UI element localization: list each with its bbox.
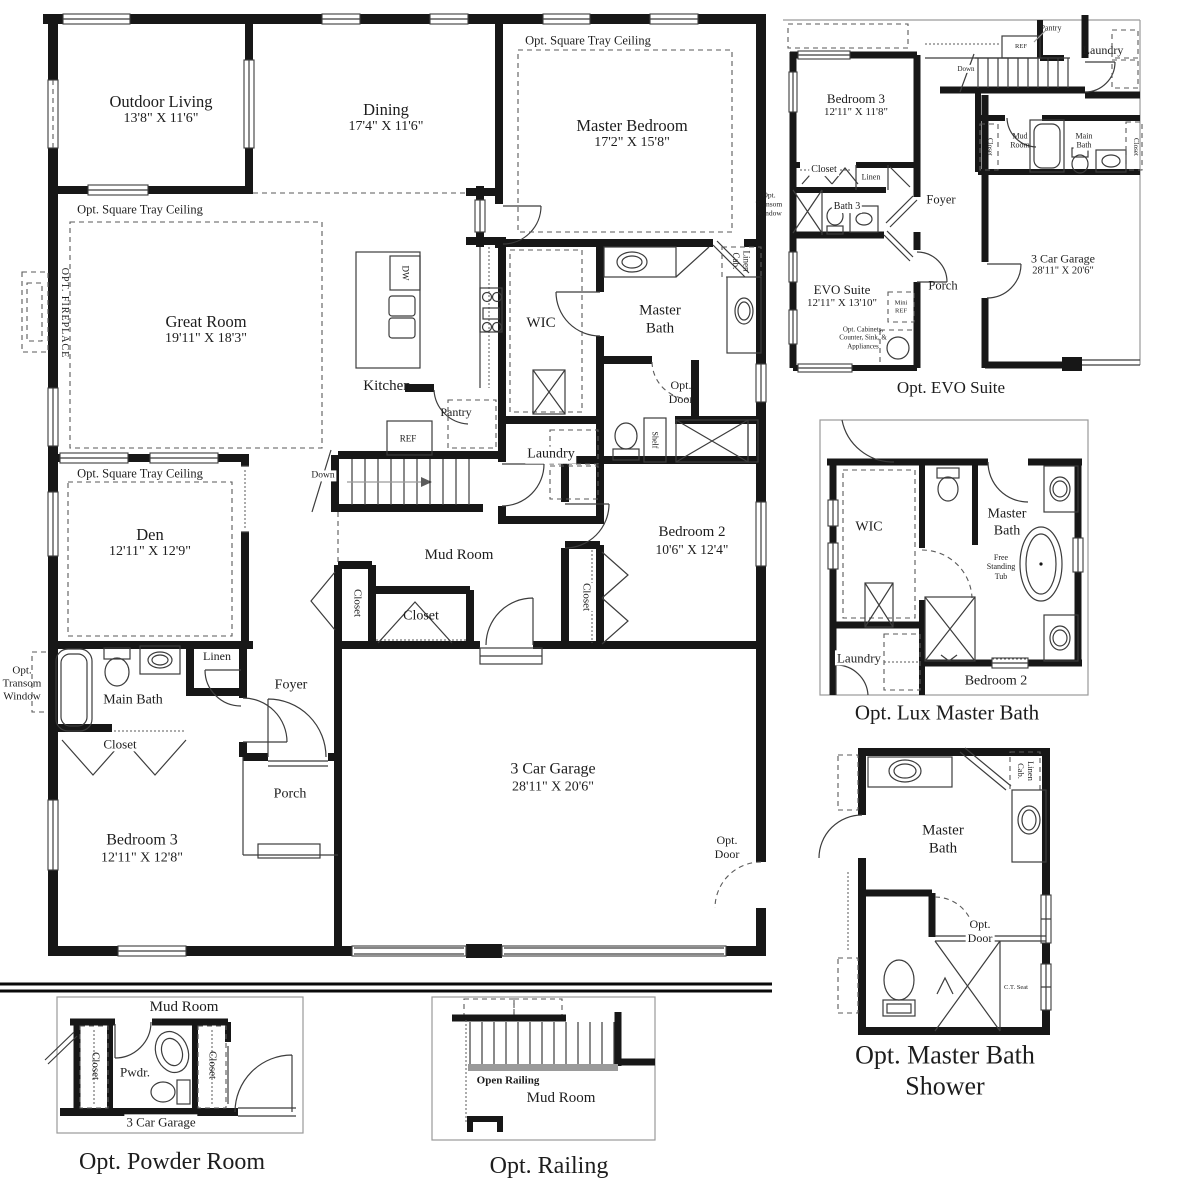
powder-garage-label: 3 Car Garage — [124, 1114, 197, 1129]
lux-free-standing-tub-label: Free Standing Tub — [987, 553, 1015, 581]
main-pantry-label: Pantry — [440, 405, 471, 419]
railing-caption: Opt. Railing — [490, 1152, 609, 1180]
room-name: Outdoor Living — [109, 92, 212, 111]
evo-bath3-label: Bath 3 — [832, 201, 862, 213]
main-garage-label: 3 Car Garage28'11" X 20'6" — [510, 760, 595, 795]
evo-mud-room-label: Mud Room — [1010, 132, 1030, 151]
lux-caption: Opt. Lux Master Bath — [855, 701, 1039, 726]
main-sheet-border — [0, 984, 772, 991]
evo-main-bath-label: Main Bath — [1074, 132, 1095, 151]
bedroom3-closet-label: Closet — [101, 736, 138, 751]
main-main-bath-label: Main Bath — [101, 693, 165, 710]
main-linen-cab-label: Linen Cab. — [730, 251, 751, 272]
shower-caption: Opt. Master Bath Shower — [818, 1040, 1073, 1101]
evo-mini-ref-label: Mini REF — [893, 299, 910, 314]
lux-bedroom2-label: Bedroom 2 — [963, 674, 1030, 691]
evo-suite-label: EVO Suite12'11" X 13'10" — [807, 282, 877, 310]
main-bedroom3-label: Bedroom 312'11" X 12'8" — [101, 831, 183, 866]
main-kitchen-label: Kitchen — [363, 378, 410, 396]
powder-closet-right-label: Closet — [206, 1051, 219, 1079]
den-tray-ceiling-label: Opt. Square Tray Ceiling — [77, 467, 203, 482]
shower-linen-cab-label: Linen Cab. — [1016, 761, 1036, 781]
mudroom-closet-vertical-label: Closet — [349, 589, 366, 617]
main-foyer-label: Foyer — [275, 678, 308, 695]
main-great-room-label: Great Room19'11" X 18'3" — [165, 312, 247, 348]
powder-pwdr-label: Pwdr. — [120, 1064, 150, 1079]
main-bath-opt-door-label: Opt. Door — [669, 378, 694, 406]
main-outdoor-living-label: Outdoor Living13'8" X 11'6" — [109, 92, 212, 128]
main-laundry-label: Laundry — [525, 447, 576, 464]
evo-porch-label: Porch — [928, 279, 957, 294]
evo-linen-label: Linen — [862, 172, 881, 181]
shower-plan — [819, 748, 1051, 1035]
main-opt-transom-label: Opt. Transom Window — [3, 665, 42, 704]
main-master-bedroom-label: Master Bedroom17'2" X 15'8" — [576, 116, 687, 152]
powder-mud-room-label: Mud Room — [150, 999, 219, 1017]
great-room-tray-ceiling-label: Opt. Square Tray Ceiling — [77, 203, 203, 218]
main-dw-label: DW — [400, 266, 411, 281]
lux-laundry-label: Laundry — [835, 650, 883, 665]
evo-opt-transom-label: Opt. Transom Window — [756, 192, 782, 219]
floor-plan-sheet: Outdoor Living13'8" X 11'6" Dining17'4" … — [0, 0, 1200, 1200]
evo-caption: Opt. EVO Suite — [897, 378, 1005, 398]
main-opt-fireplace-label: OPT. FIREPLACE — [58, 268, 70, 359]
mudroom-closet-label: Closet — [403, 609, 439, 626]
evo-ref-label: REF — [1015, 43, 1027, 51]
main-den-label: Den12'11" X 12'9" — [109, 525, 191, 561]
evo-pantry-label: Pantry — [1041, 23, 1062, 32]
main-shelf-label: Shelf — [650, 432, 659, 449]
main-linen-label: Linen — [203, 649, 231, 663]
shower-opt-door-label: Opt. Door — [966, 917, 995, 945]
evo-closet-label: Closet — [809, 164, 839, 176]
powder-closet-left-label: Closet — [89, 1052, 102, 1080]
floorplan-linework — [0, 0, 1200, 1200]
powder-plan — [45, 997, 303, 1133]
evo-down-label: Down — [955, 65, 976, 73]
evo-laundry-label: Laundry — [1083, 43, 1124, 57]
railing-plan — [432, 997, 655, 1140]
evo-foyer-label: Foyer — [926, 193, 955, 208]
garage-opt-door-label: Opt. Door — [713, 833, 742, 861]
railing-open-railing-label: Open Railing — [477, 1075, 540, 1088]
room-dims: 13'8" X 11'6" — [109, 111, 212, 128]
main-wic-label: WIC — [526, 315, 555, 333]
lux-master-bath-label: Master Bath — [988, 506, 1027, 539]
bedroom2-closet-label: Closet — [578, 583, 595, 611]
main-porch-label: Porch — [274, 787, 307, 804]
lux-wic-label: WIC — [855, 520, 882, 537]
evo-closet-left-label: Closet — [986, 138, 994, 156]
main-plan-windows — [48, 14, 766, 956]
master-tray-ceiling-label: Opt. Square Tray Ceiling — [525, 34, 651, 49]
main-ref-label: REF — [400, 434, 417, 445]
railing-mud-room-label: Mud Room — [527, 1090, 596, 1108]
main-master-bath-label: Master Bath — [639, 302, 681, 337]
powder-caption: Opt. Powder Room — [79, 1148, 265, 1176]
main-bedroom2-label: Bedroom 210'6" X 12'4" — [656, 524, 729, 558]
evo-closet-right-label: Closet — [1132, 138, 1140, 156]
evo-garage-label: 3 Car Garage28'11" X 20'6" — [1031, 252, 1095, 279]
main-stairs-down-label: Down — [309, 470, 336, 481]
shower-master-bath-label: Master Bath — [922, 822, 964, 857]
shower-ct-seat-label: C.T. Seat — [1002, 984, 1030, 992]
evo-bedroom3-label: Bedroom 312'11" X 11'8" — [824, 91, 888, 119]
main-mud-room-label: Mud Room — [425, 547, 494, 565]
main-dining-label: Dining17'4" X 11'6" — [348, 100, 423, 136]
evo-opt-note-label: Opt. Cabinets, Counter, Sink, & Applianc… — [839, 326, 887, 351]
